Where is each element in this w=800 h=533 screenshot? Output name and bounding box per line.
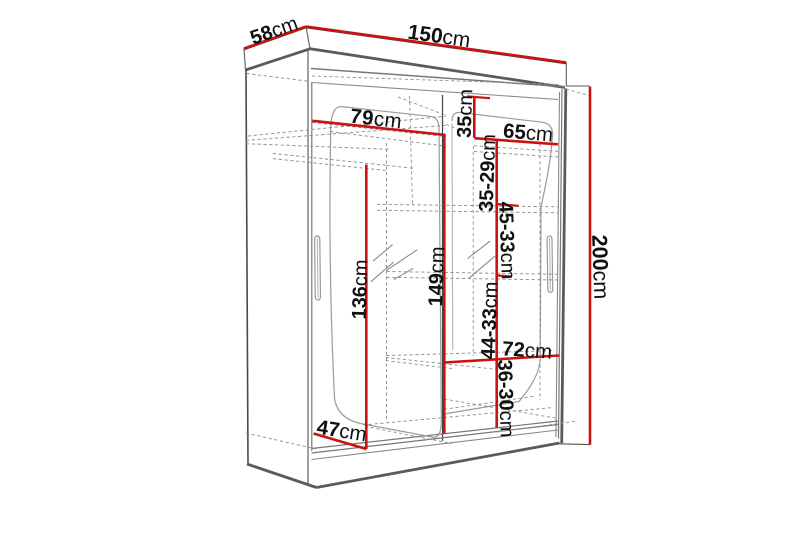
svg-text:65cm: 65cm <box>502 120 554 147</box>
svg-text:200cm: 200cm <box>587 234 613 299</box>
svg-text:72cm: 72cm <box>501 338 553 364</box>
svg-text:45-33cm: 45-33cm <box>494 201 519 280</box>
svg-text:44-33cm: 44-33cm <box>478 281 503 360</box>
svg-text:136cm: 136cm <box>349 259 373 320</box>
svg-text:36-30cm: 36-30cm <box>493 359 518 438</box>
svg-text:149cm: 149cm <box>425 246 449 307</box>
svg-text:35-29cm: 35-29cm <box>476 134 501 213</box>
svg-text:35cm: 35cm <box>454 89 478 139</box>
